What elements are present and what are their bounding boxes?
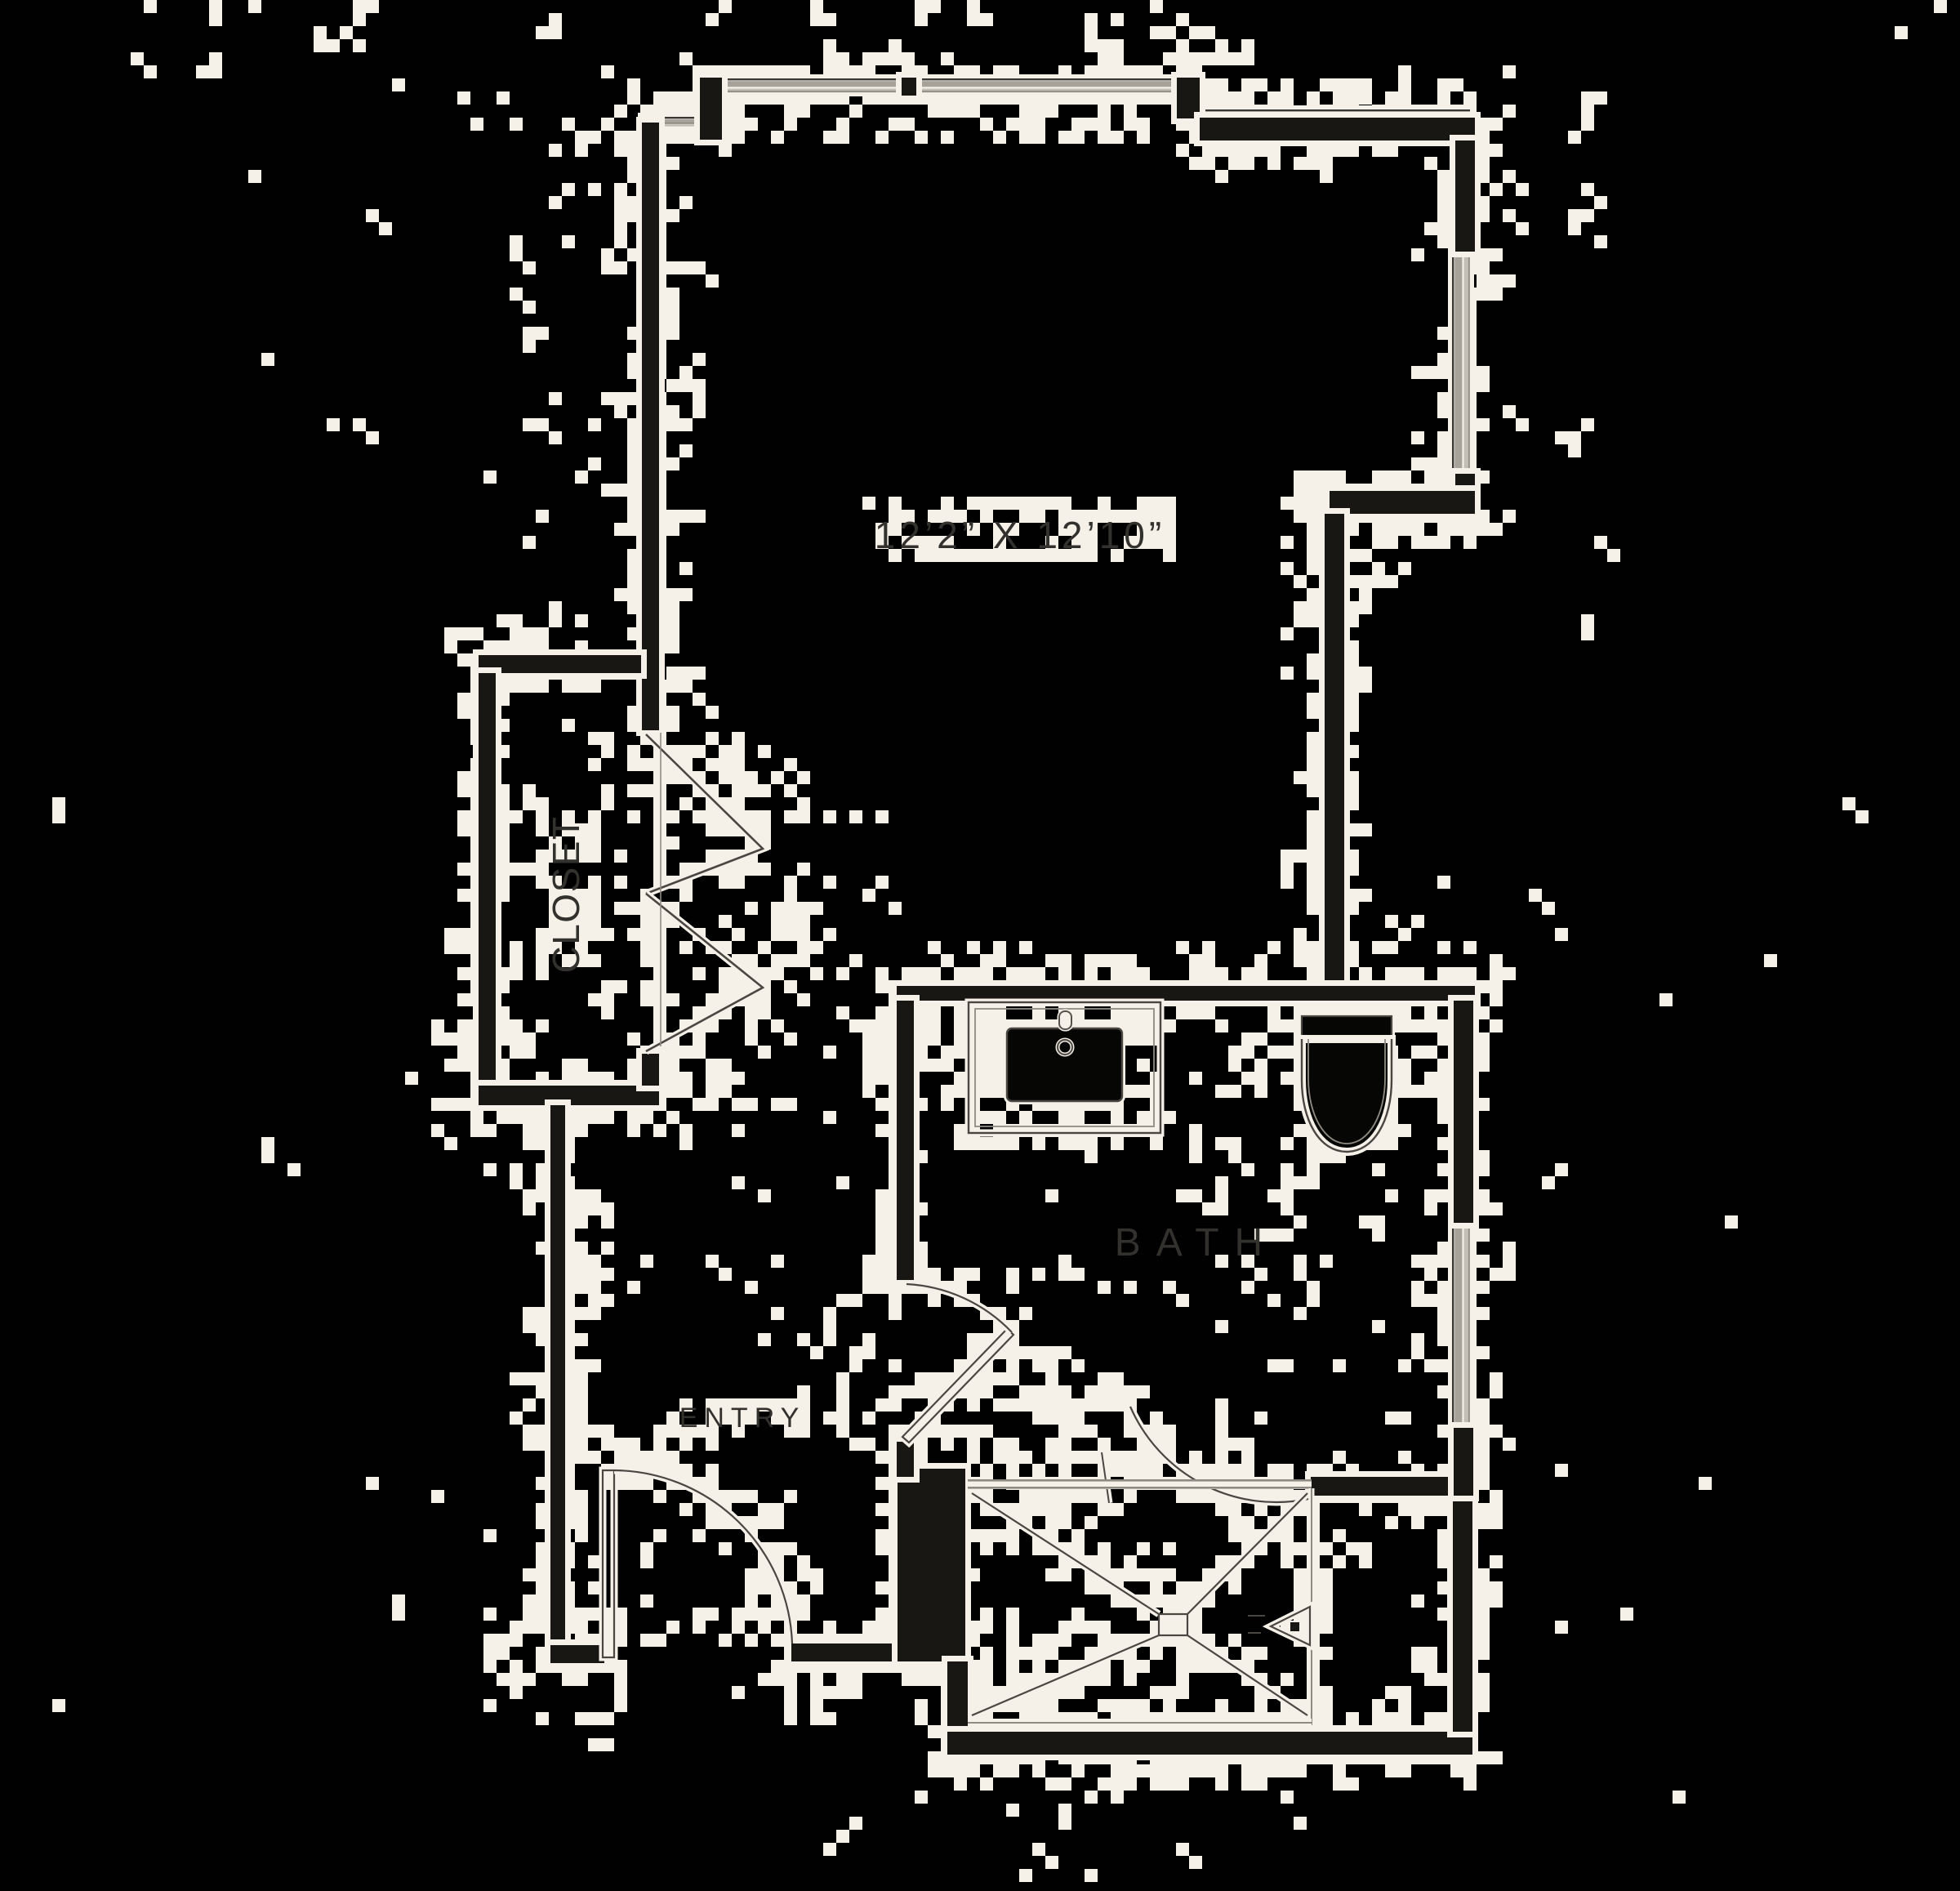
svg-text:ENTRY: ENTRY xyxy=(679,1403,806,1434)
svg-text:BATH: BATH xyxy=(1115,1221,1278,1264)
svg-text:12’2” X 12’10”: 12’2” X 12’10” xyxy=(875,514,1165,556)
svg-text:CLOSET: CLOSET xyxy=(545,815,587,973)
